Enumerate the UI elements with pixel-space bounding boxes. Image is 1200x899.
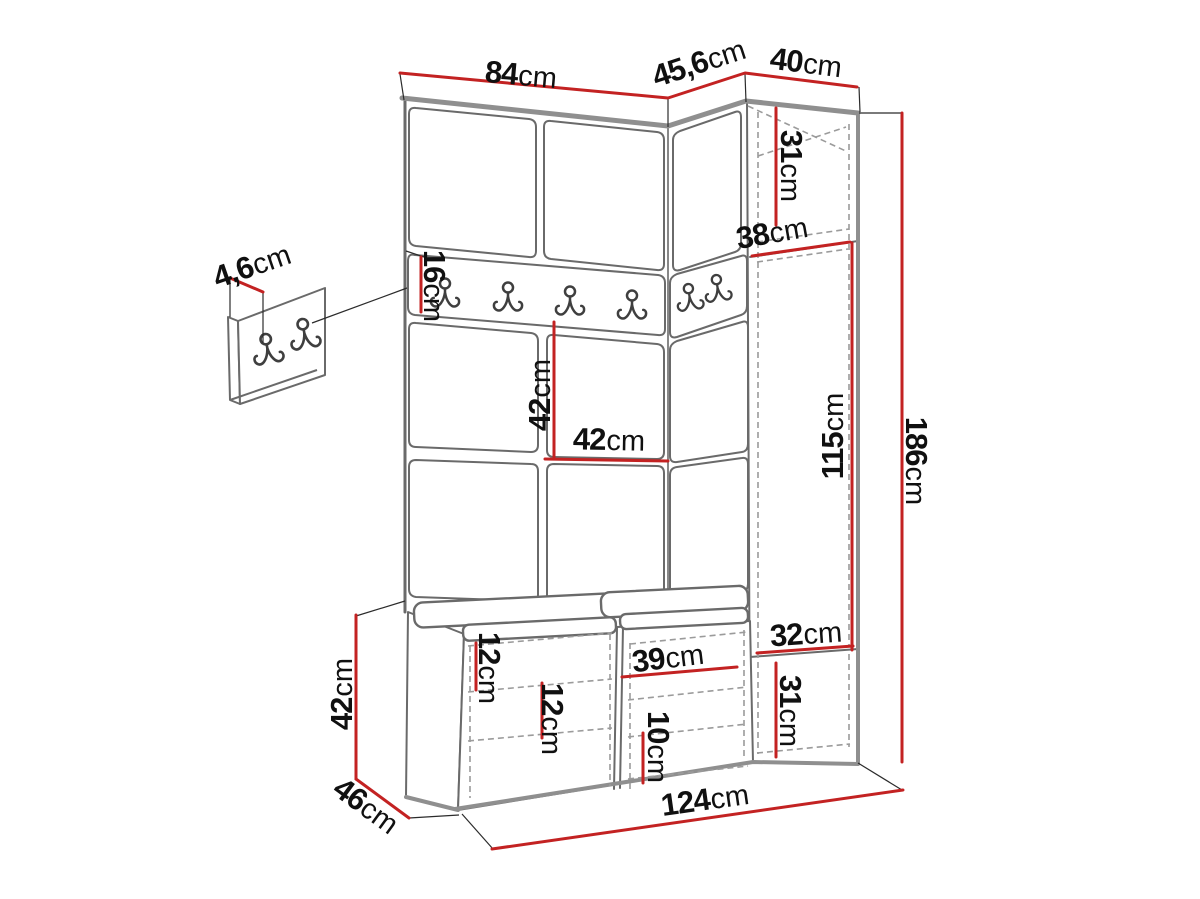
dim-bench-gap-a-label: 12cm [473, 632, 505, 704]
dim-unit: cm [417, 283, 449, 322]
dim-unit: cm [641, 744, 673, 783]
dim-value: 39 [630, 641, 667, 680]
coat-hook-icon [618, 291, 646, 319]
dim-rail-height-label: 16cm [418, 250, 450, 322]
dim-value: 12 [535, 683, 570, 715]
dim-value: 42 [573, 421, 606, 457]
dim-line-42-horiz [545, 459, 668, 461]
dim-value: 115 [815, 432, 850, 479]
dim-bench-gap-c-label: 10cm [642, 711, 674, 783]
dim-unit: cm [525, 359, 557, 398]
hook-rail-angled [670, 256, 747, 338]
dim-shelf-height-label: 42cm [524, 359, 556, 431]
dim-value: 40 [768, 41, 805, 80]
dim-value: 38 [733, 216, 771, 256]
dim-shelf-width-label: 42cm [573, 423, 646, 456]
dim-front-width-label: 84cm [484, 56, 559, 94]
dim-unit: cm [899, 467, 931, 506]
dim-value: 10 [641, 711, 676, 743]
dim-unit: cm [327, 658, 359, 697]
top-door-right [544, 121, 664, 270]
dim-unit: cm [801, 48, 843, 84]
dim-value: 42 [324, 698, 359, 730]
dim-unit: cm [517, 60, 558, 95]
coat-hook-icon [556, 287, 584, 315]
detail-pointer-line [312, 288, 407, 323]
dim-value: 186 [899, 417, 934, 466]
dim-open-section-height-label: 115cm [817, 393, 849, 480]
bench-side-panel [406, 612, 464, 810]
dim-unit: cm [535, 716, 567, 755]
dim-value: 16 [417, 250, 452, 282]
dim-unit: cm [802, 617, 843, 652]
dim-value: 42 [522, 399, 557, 431]
dim-bottom-cabinet-height-label: 31cm [774, 675, 806, 747]
dim-bench-gap-b-label: 12cm [536, 683, 568, 755]
dim-unit: cm [773, 708, 805, 747]
coat-hook-icon [494, 283, 522, 311]
dim-value: 31 [774, 130, 809, 162]
dim-unit: cm [472, 665, 504, 704]
dim-value: 84 [484, 54, 519, 92]
diagram-canvas: 84cm 45,6cm 40cm 31cm 38cm 16cm 4,6cm 42… [0, 0, 1200, 899]
dim-unit: cm [774, 163, 806, 202]
top-door-left [409, 108, 536, 257]
dim-unit: cm [606, 425, 645, 458]
dim-unit: cm [818, 393, 850, 432]
coat-hooks [431, 273, 732, 318]
coat-hook-icon [675, 282, 704, 311]
dim-value: 31 [773, 675, 808, 707]
angled-door [673, 112, 741, 271]
coat-hook-icon [703, 273, 732, 302]
hook-panel-detail [228, 288, 325, 404]
dim-unit: cm [767, 212, 811, 250]
dim-column-inner-width-label: 32cm [769, 616, 843, 653]
dim-unit: cm [708, 779, 751, 816]
dim-bench-height-label: 42cm [326, 658, 358, 730]
dim-unit: cm [664, 639, 706, 675]
dim-top-cabinet-height-label: 31cm [775, 130, 807, 202]
dim-value: 32 [769, 616, 804, 653]
dim-value: 124 [659, 782, 712, 823]
dim-total-height-label: 186cm [900, 417, 932, 505]
dim-value: 12 [472, 632, 507, 664]
